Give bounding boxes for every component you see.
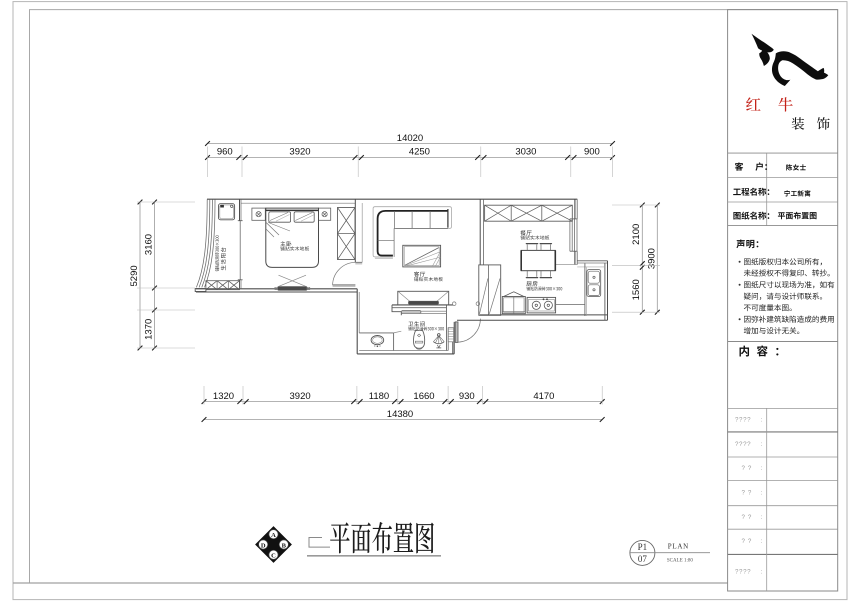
svg-text::: : [761, 569, 763, 576]
svg-text:900: 900 [584, 147, 600, 158]
svg-text:? ?: ? ? [742, 490, 752, 497]
svg-text::: : [761, 514, 763, 521]
svg-text:D: D [261, 542, 266, 549]
svg-text:1560: 1560 [631, 279, 642, 300]
svg-text:1320: 1320 [213, 391, 234, 402]
svg-text:3160: 3160 [144, 234, 155, 255]
svg-text:C: C [271, 553, 276, 560]
svg-text:SCALE 1:80: SCALE 1:80 [667, 559, 693, 564]
svg-text::: : [761, 490, 763, 497]
svg-text:14380: 14380 [387, 409, 413, 420]
svg-text:3900: 3900 [646, 248, 657, 269]
svg-text:2100: 2100 [631, 224, 642, 245]
svg-text:PLAN: PLAN [668, 543, 689, 551]
svg-text:B: B [282, 542, 287, 549]
svg-text:1370: 1370 [144, 319, 155, 340]
svg-text:P1: P1 [638, 542, 648, 552]
svg-text:3030: 3030 [515, 147, 536, 158]
svg-text::: : [761, 465, 763, 472]
svg-text:????: ???? [735, 569, 751, 576]
svg-text:A: A [271, 532, 276, 539]
svg-text:5290: 5290 [129, 265, 140, 286]
svg-text:1180: 1180 [369, 391, 389, 402]
svg-text:960: 960 [217, 147, 233, 158]
svg-text:07: 07 [638, 554, 648, 564]
svg-text::: : [761, 417, 763, 424]
svg-text:????: ???? [735, 417, 751, 424]
svg-text:? ?: ? ? [742, 514, 752, 521]
svg-text:? ?: ? ? [742, 465, 752, 472]
svg-text:4170: 4170 [533, 391, 554, 402]
svg-text:????: ???? [735, 441, 751, 448]
svg-text:3920: 3920 [290, 391, 311, 402]
svg-text:14020: 14020 [397, 133, 423, 144]
svg-text::: : [761, 538, 763, 545]
svg-text:4250: 4250 [409, 147, 430, 158]
svg-text:? ?: ? ? [742, 538, 752, 545]
svg-text::: : [761, 441, 763, 448]
svg-text:1660: 1660 [413, 391, 434, 402]
svg-text:930: 930 [459, 391, 475, 402]
svg-text:3920: 3920 [289, 147, 310, 158]
